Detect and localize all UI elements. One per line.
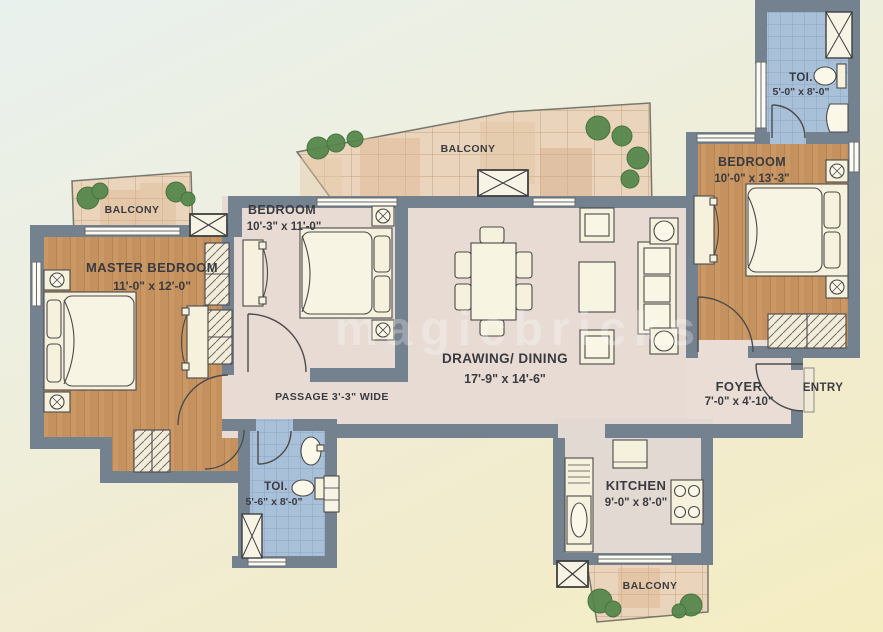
toilet-lower-dims: 5'-6" x 8'-0" <box>246 496 303 508</box>
window-bedroom-top <box>317 198 397 206</box>
drawing-dining-label: DRAWING/ DINING <box>442 351 568 366</box>
toilet-upper-dims: 5'-0" x 8'-0" <box>773 86 830 98</box>
shaft-icon <box>478 170 528 196</box>
wardrobe <box>208 310 232 364</box>
foyer-dims: 7'-0" x 4'-10" <box>705 396 774 408</box>
nightstand <box>44 392 70 412</box>
toilet-upper-label: TOI. <box>789 72 813 84</box>
balcony-left-label: BALCONY <box>105 204 160 216</box>
nightstand <box>826 160 848 182</box>
master-bed <box>44 292 136 390</box>
window-kitchen-balcony <box>598 555 672 563</box>
side-table <box>650 218 678 244</box>
foyer-label: FOYER <box>716 379 763 394</box>
master-bedroom-dims: 11'-0" x 12'-0" <box>113 279 191 293</box>
kitchen-fridge <box>613 440 647 468</box>
floor-plan: magicbricks BALCONY MASTER BEDROOM 11'-0… <box>0 0 883 632</box>
window-master-top <box>85 227 180 235</box>
floor-plan-drawing: magicbricks BALCONY MASTER BEDROOM 11'-0… <box>0 0 883 632</box>
window-drawing <box>533 198 575 206</box>
window-bedroom-right-side <box>849 142 859 172</box>
balcony-bottom-label: BALCONY <box>623 580 678 592</box>
shower-tray-icon <box>242 514 262 558</box>
nightstand <box>44 270 70 290</box>
wardrobe <box>768 314 846 348</box>
nightstand <box>826 276 848 298</box>
bedroom-right-bed <box>746 184 848 276</box>
toilet-lower-label: TOI. <box>264 481 288 493</box>
armchair <box>580 208 614 242</box>
entry-label: ENTRY <box>803 382 844 394</box>
window-master-left <box>32 262 41 306</box>
kitchen-label: KITCHEN <box>606 478 667 493</box>
bedroom-right-label: BEDROOM <box>718 155 786 169</box>
window-toilet-lower <box>248 558 286 566</box>
bedroom-right-dims: 10'-0" x 13'-3" <box>714 173 789 185</box>
kitchen-dims: 9'-0" x 8'-0" <box>605 497 667 509</box>
shaft-icon <box>190 214 227 236</box>
bedroom-top-dims: 10'-3" x 11'-0" <box>247 221 322 233</box>
balcony-top-label: BALCONY <box>441 143 496 155</box>
wardrobe <box>134 430 170 472</box>
corner-basin-icon <box>827 104 849 132</box>
drawing-dining-dims: 17'-9" x 14'-6" <box>464 372 546 386</box>
master-bedroom-label: MASTER BEDROOM <box>86 260 218 275</box>
passage-label: PASSAGE 3'-3" WIDE <box>275 391 389 403</box>
kitchen-hob <box>671 480 703 524</box>
nightstand <box>372 206 394 226</box>
bedroom-top-label: BEDROOM <box>248 203 316 217</box>
watermark: magicbricks <box>335 303 703 356</box>
shower-tray-icon <box>826 12 852 58</box>
window-toilet-upper <box>756 62 766 128</box>
duct-ledge <box>324 476 339 512</box>
shaft-icon <box>557 561 588 587</box>
window-bedroom-right-top <box>697 134 755 142</box>
kitchen-sink-counter <box>565 458 593 552</box>
